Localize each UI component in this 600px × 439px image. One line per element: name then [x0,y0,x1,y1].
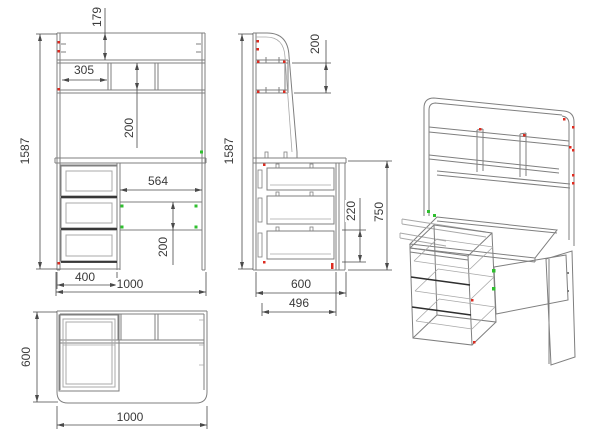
dim-side-shelf-height: 200 [309,33,321,55]
red-cam-markers-iso [471,118,575,344]
isometric-view-linework [400,98,575,365]
dim-side-total-depth: 600 [290,278,312,290]
dim-front-back-top-offset: 179 [91,6,103,28]
dim-front-modesty-height: 200 [157,236,169,258]
dim-side-total-height: 1587 [223,137,235,166]
dim-front-drawer-width: 400 [74,271,96,283]
dim-top-total-depth: 600 [20,346,32,368]
side-view-linework [238,33,392,316]
technical-drawing-canvas: 1587 179 305 200 564 200 400 1000 1587 2… [0,0,600,439]
dim-front-shelf-height: 200 [123,117,135,139]
green-cam-markers [121,151,204,229]
dim-top-total-width: 1000 [116,411,145,423]
dim-front-shelf-width: 305 [73,64,95,76]
side-view-dimension-lines [238,34,392,316]
dim-front-knee-opening: 564 [147,175,169,187]
front-view-linework [36,8,206,296]
dim-side-drawer-stack: 220 [345,200,357,222]
dim-front-total-width: 1000 [116,278,145,290]
dim-side-modesty-depth: 496 [288,297,310,309]
dim-side-worktop-height: 750 [373,201,385,223]
dim-front-total-height: 1587 [19,137,31,166]
